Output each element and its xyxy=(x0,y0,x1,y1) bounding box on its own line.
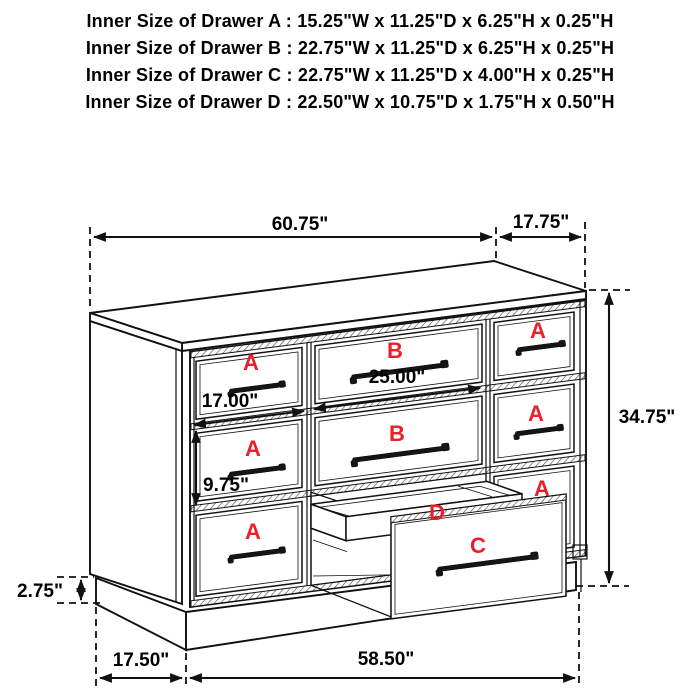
dimension-base-height: 2.75" xyxy=(17,577,101,603)
base-height-label: 2.75" xyxy=(17,581,63,602)
cabinet-side-panel xyxy=(90,321,182,604)
label-drawer-a: A xyxy=(243,350,259,375)
dresser-dimension-sheet: Inner Size of Drawer A : 15.25"W x 11.25… xyxy=(0,0,700,700)
dimension-overall-height: 34.75" xyxy=(576,290,675,586)
base-depth-label: 17.50" xyxy=(113,650,170,671)
top-width-label: 60.75" xyxy=(272,214,329,235)
drawer-a-left-bottom xyxy=(196,501,302,596)
label-drawer-a: A xyxy=(245,519,261,544)
label-drawer-a: A xyxy=(528,401,544,426)
drawer-b-width-label: 25.00" xyxy=(369,367,426,388)
label-drawer-a: A xyxy=(530,318,546,343)
drawer-a-width-label: 17.00" xyxy=(202,391,259,412)
drawer-a-height-label: 9.75" xyxy=(203,475,249,496)
label-drawer-a: A xyxy=(534,476,550,501)
dresser-diagram: 60.75" 17.75" 34.75" 17.00" 25.00" 9.75" xyxy=(0,0,700,700)
label-drawer-c: C xyxy=(470,533,486,558)
top-depth-label: 17.75" xyxy=(513,212,570,233)
label-drawer-d: D xyxy=(429,500,445,525)
overall-height-label: 34.75" xyxy=(619,407,676,428)
label-drawer-a: A xyxy=(245,436,261,461)
label-drawer-b: B xyxy=(389,421,405,446)
base-width-label: 58.50" xyxy=(358,649,415,670)
label-drawer-b: B xyxy=(387,338,403,363)
